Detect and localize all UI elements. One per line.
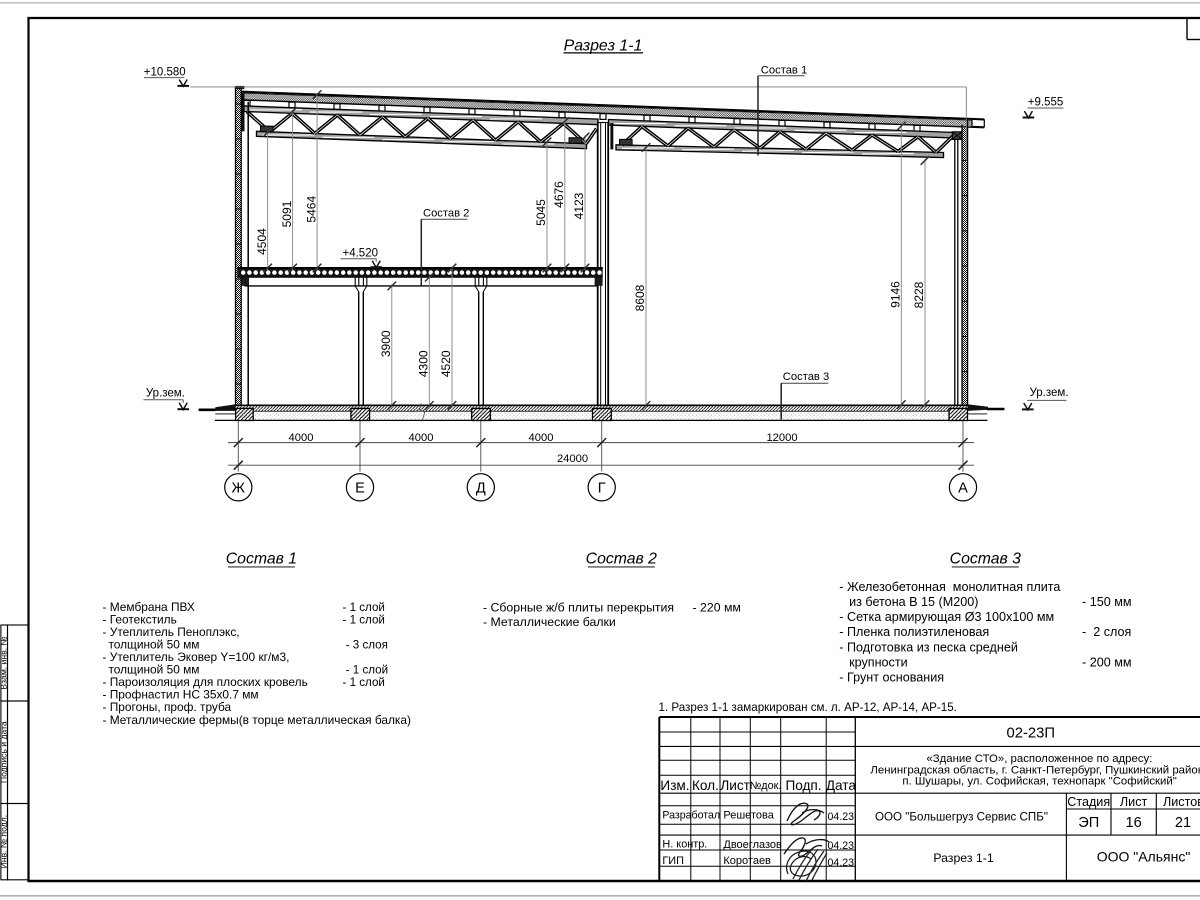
svg-text:12000: 12000	[766, 432, 797, 444]
svg-text:4504: 4504	[255, 228, 269, 255]
svg-text:Коротаев: Коротаев	[723, 855, 771, 867]
svg-text:Состав 3: Состав 3	[950, 551, 1021, 568]
svg-text:Разрез 1-1: Разрез 1-1	[933, 851, 994, 865]
svg-text:4520: 4520	[439, 350, 453, 377]
svg-text:Листов: Листов	[1163, 795, 1200, 809]
svg-text:- Металлические фермы(в торце: - Металлические фермы(в торце металличес…	[103, 713, 411, 727]
svg-text:Решетова: Решетова	[723, 810, 774, 822]
svg-text:- 220 мм: - 220 мм	[693, 601, 741, 615]
svg-text:Состав 3: Состав 3	[783, 371, 829, 383]
svg-text:8608: 8608	[633, 284, 647, 311]
svg-text:- Подготовка из песка средней: - Подготовка из песка средней	[839, 640, 1018, 654]
svg-text:- 200 мм: - 200 мм	[1082, 655, 1132, 669]
svg-text:ЭП: ЭП	[1078, 815, 1099, 831]
svg-text:из бетона В 15 (М200): из бетона В 15 (М200)	[839, 595, 978, 609]
svg-text:4000: 4000	[529, 432, 554, 444]
svg-text:1. Разрез 1-1 замаркирован см.: 1. Разрез 1-1 замаркирован см. л. АР-12,…	[659, 701, 957, 714]
svg-text:Состав 1: Состав 1	[226, 551, 297, 568]
svg-text:9146: 9146	[889, 281, 903, 308]
svg-text:ГИП: ГИП	[662, 855, 684, 867]
svg-text:- 3 слоя: - 3 слоя	[343, 639, 388, 652]
svg-text:Состав 2: Состав 2	[423, 208, 469, 220]
svg-text:- 1 слой: - 1 слой	[343, 676, 385, 689]
svg-text:Двоеглазов: Двоеглазов	[723, 839, 782, 851]
svg-text:Состав 1: Состав 1	[761, 64, 807, 76]
svg-text:+10.580: +10.580	[144, 67, 186, 79]
svg-text:Дата: Дата	[826, 778, 857, 793]
svg-text:5045: 5045	[534, 199, 548, 226]
svg-text:Д: Д	[476, 480, 486, 496]
svg-text:+4.520: +4.520	[343, 248, 379, 260]
svg-text:Состав 2: Состав 2	[586, 551, 657, 568]
svg-text:Взам. инв. №: Взам. инв. №	[0, 636, 9, 689]
svg-text:А: А	[958, 480, 968, 496]
svg-text:Стадия: Стадия	[1067, 795, 1110, 809]
svg-text:4000: 4000	[409, 432, 434, 444]
svg-text:4000: 4000	[289, 432, 314, 444]
svg-text:- Железобетонная монолитная п: - Железобетонная монолитная плита	[839, 580, 1060, 594]
svg-text:Ж: Ж	[232, 480, 246, 496]
svg-text:ООО "Альянс": ООО "Альянс"	[1097, 848, 1191, 864]
svg-text:- 150 мм: - 150 мм	[1082, 595, 1132, 609]
svg-text:5091: 5091	[280, 200, 294, 227]
svg-text:04.23: 04.23	[828, 811, 855, 823]
svg-text:- Грунт основания: - Грунт основания	[839, 671, 944, 685]
svg-text:Подп.: Подп.	[785, 778, 821, 793]
svg-text:«Здание СТО», расположенное по: «Здание СТО», расположенное по адресу:	[926, 753, 1152, 765]
svg-text:п. Шушары, ул. Софийская, техн: п. Шушары, ул. Софийская, технопарк "Соф…	[902, 775, 1176, 787]
svg-text:- Сетка армирующая Ø3 100х100: - Сетка армирующая Ø3 100х100 мм	[839, 610, 1054, 624]
svg-text:Изм.: Изм.	[660, 778, 689, 793]
svg-text:Лист: Лист	[1120, 795, 1148, 809]
svg-text:Инв. № подл.: Инв. № подл.	[0, 815, 9, 869]
svg-text:Лист: Лист	[720, 778, 750, 793]
svg-text:Е: Е	[355, 480, 365, 496]
svg-text:Разрез 1-1: Разрез 1-1	[564, 37, 643, 54]
svg-text:- Пленка полиэтиленовая: - Пленка полиэтиленовая	[839, 625, 989, 639]
svg-text:Ур.зем.: Ур.зем.	[146, 387, 185, 399]
svg-text:+9.555: +9.555	[1028, 97, 1064, 109]
svg-text:- 1 слой: - 1 слой	[343, 664, 389, 677]
svg-text:4300: 4300	[417, 350, 431, 377]
svg-text:21: 21	[1175, 815, 1191, 831]
svg-text:3900: 3900	[379, 330, 393, 357]
svg-text:4676: 4676	[552, 181, 566, 208]
svg-text:- Сборные ж/б плиты перекрытия: - Сборные ж/б плиты перекрытия	[483, 601, 674, 615]
svg-text:5464: 5464	[304, 196, 318, 223]
svg-text:Кол.: Кол.	[692, 778, 719, 793]
svg-text:Разработал: Разработал	[662, 810, 720, 822]
svg-text:Ур.зем.: Ур.зем.	[1030, 387, 1069, 399]
svg-text:- 1 слой: - 1 слой	[343, 601, 385, 614]
svg-text:ООО "Большегруз Сервис СПБ": ООО "Большегруз Сервис СПБ"	[875, 811, 1048, 824]
svg-text:4123: 4123	[572, 192, 586, 219]
svg-text:04.23: 04.23	[828, 840, 855, 852]
svg-text:24000: 24000	[557, 453, 588, 465]
svg-text:02-23П: 02-23П	[1007, 726, 1055, 742]
svg-text:- Металлические балки: - Металлические балки	[483, 615, 616, 629]
svg-text:04.23: 04.23	[828, 857, 855, 869]
svg-text:Н. контр.: Н. контр.	[662, 839, 707, 851]
svg-text:Г: Г	[598, 480, 606, 496]
svg-text:- 1 слой: - 1 слой	[343, 613, 385, 626]
svg-text:крупности: крупности	[839, 655, 907, 669]
svg-text:Подпись и дата: Подпись и дата	[0, 721, 9, 783]
svg-text:16: 16	[1125, 815, 1141, 831]
svg-text:№док.: №док.	[750, 780, 782, 792]
svg-text:8228: 8228	[912, 281, 926, 308]
svg-text:- 2 слоя: - 2 слоя	[1082, 625, 1131, 639]
